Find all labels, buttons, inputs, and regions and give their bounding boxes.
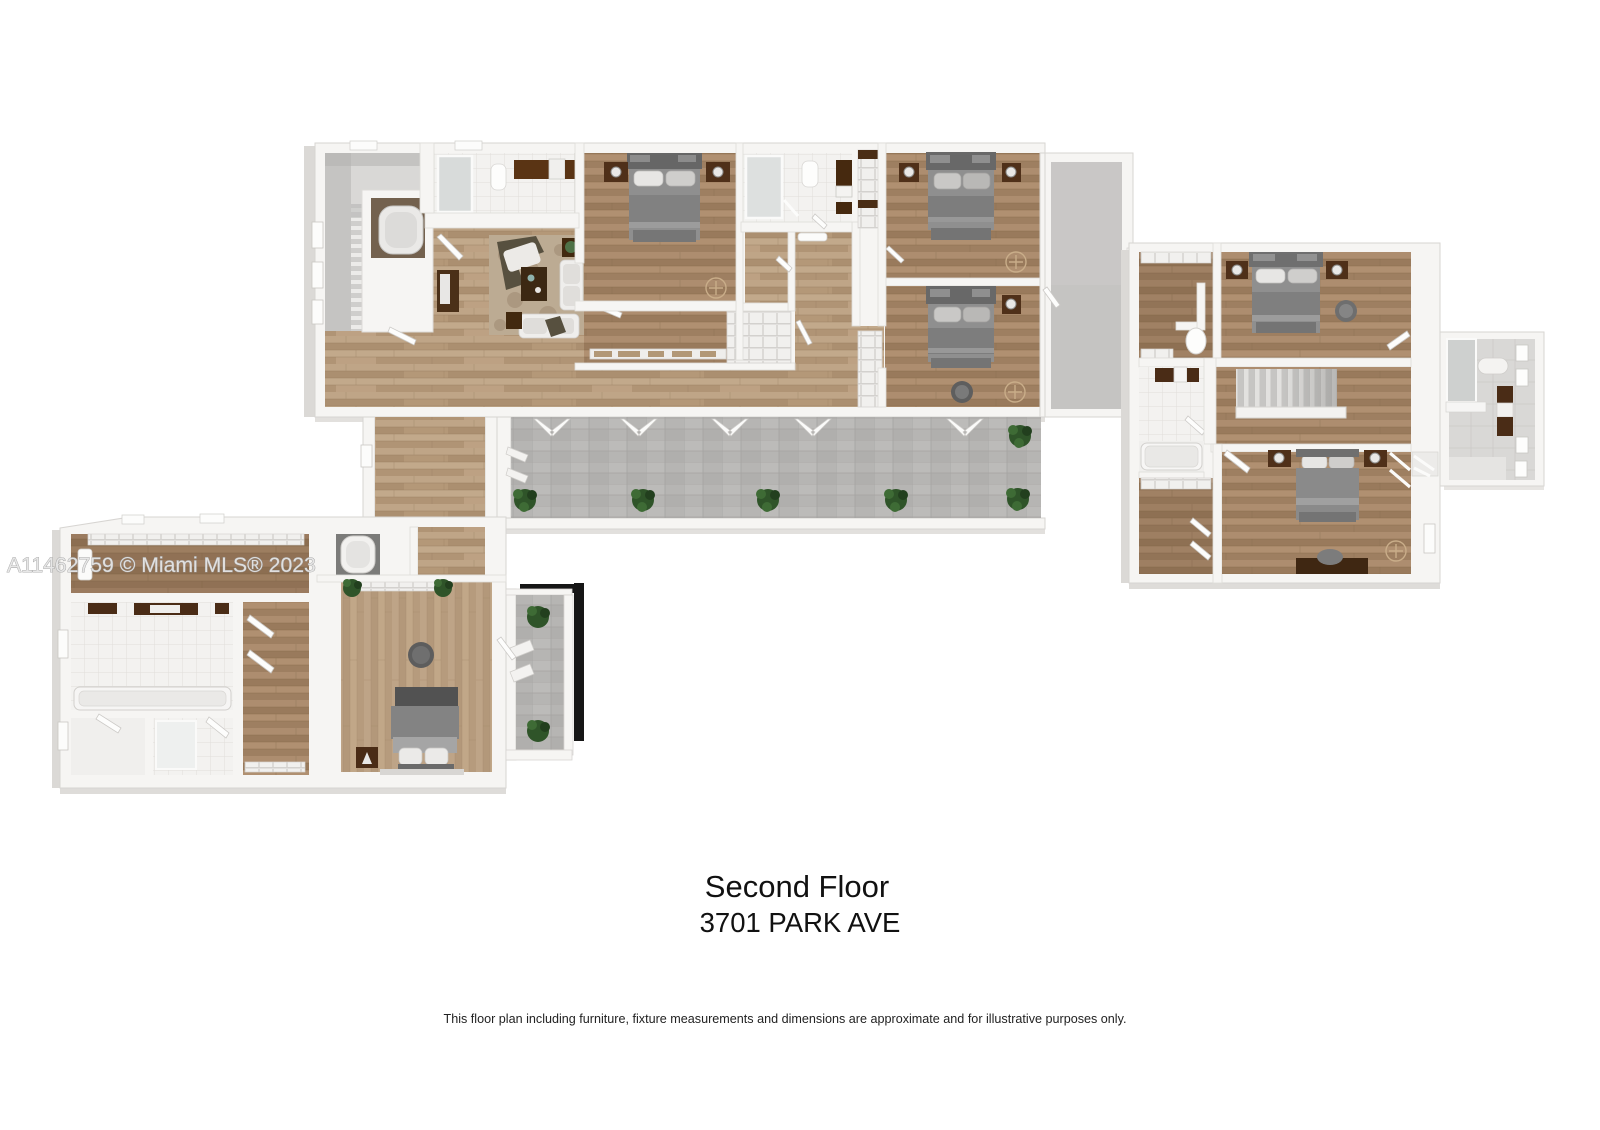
svg-text:This floor plan including furn: This floor plan including furniture, fix… — [444, 1012, 1127, 1026]
svg-text:A11462759 © Miami MLS® 2023: A11462759 © Miami MLS® 2023 — [7, 554, 316, 577]
svg-text:3701 PARK AVE: 3701 PARK AVE — [700, 907, 901, 938]
svg-text:Second Floor: Second Floor — [705, 869, 889, 904]
